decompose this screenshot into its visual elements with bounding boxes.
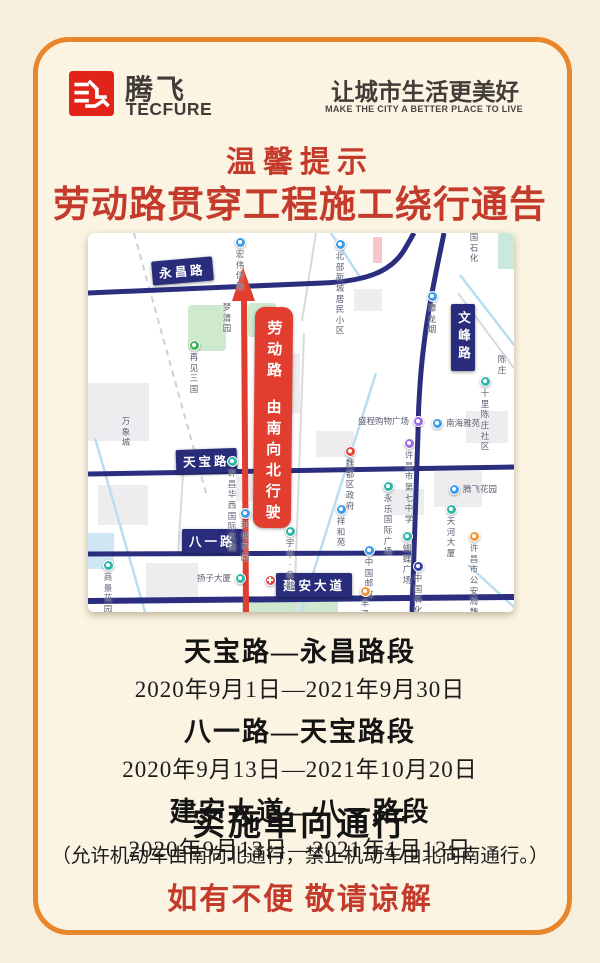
detour-direction: 由南向北行驶	[261, 399, 283, 525]
map-poi-label: 扬子大厦	[197, 573, 231, 584]
map-poi-label: 宇华·名都	[286, 538, 295, 591]
apology-text: 如有不便 敬请谅解	[0, 874, 600, 918]
map-pin-icon	[336, 504, 347, 515]
map-poi-label: 潭龙烟	[428, 303, 437, 335]
map-poi-label: 天河大厦	[447, 516, 456, 559]
map-pin-icon	[364, 545, 375, 556]
map-poi-label: 北部新城 居民小区	[336, 251, 345, 336]
closure-dates: 2020年9月13日—2021年10月20日	[0, 750, 600, 784]
map-pin-icon	[103, 560, 114, 571]
policy-text: 实施单向通行	[0, 797, 600, 845]
map-poi-label: 中国石化	[414, 573, 423, 612]
poster: 腾飞 TECFURE 让城市生活更美好 MAKE THE CITY A BETT…	[0, 0, 600, 963]
map-pin-icon	[345, 446, 356, 457]
brand-slogan-en: MAKE THE CITY A BETTER PLACE TO LIVE	[324, 104, 524, 114]
map-pin-icon	[446, 504, 457, 515]
map-poi-label: 万象城	[122, 416, 131, 448]
closure-road-range: 天宝路—永昌路段	[0, 630, 600, 669]
map-poi-label: 宏伟佳苑	[236, 249, 245, 292]
map-pin-icon	[402, 531, 413, 542]
map-poi-label: 丰泽园饭店	[361, 598, 370, 612]
map-pin-icon	[480, 376, 491, 387]
map-poi-label: 陈庄	[498, 354, 507, 375]
map-pin-icon	[449, 484, 460, 495]
map-pin-icon	[227, 456, 238, 467]
construction-map: 永昌路天宝路八一路建安大道文峰路 劳动路 由南向北行驶 宏伟佳苑北部新城 居民小…	[88, 233, 514, 612]
tecfure-logo-icon	[69, 71, 114, 116]
map-poi-label: 南海雅苑	[446, 418, 480, 429]
map-poi-label: 魏都区政府	[346, 458, 355, 511]
map-poi-label: 永乐国际广场	[384, 493, 393, 557]
map-pin-icon	[383, 481, 394, 492]
map-pin-icon	[335, 239, 346, 250]
closure-dates: 2020年9月1日—2021年9月30日	[0, 670, 600, 704]
brand-slogan-cn: 让城市生活更美好	[330, 73, 520, 107]
map-poi-label: 蝴蝶广场	[403, 543, 412, 586]
notice-title: 劳动路贯穿工程施工绕行通告	[0, 174, 600, 228]
map-pin-icon	[265, 575, 276, 586]
road-label: 文峰路	[451, 304, 475, 371]
map-pin-icon	[360, 586, 371, 597]
map-poi-label: 再见三国	[190, 352, 199, 395]
map-poi-label: 腾飞花园	[463, 484, 497, 495]
map-pin-icon	[189, 340, 200, 351]
map-pin-icon	[432, 418, 443, 429]
map-poi-label: 国石化	[470, 233, 479, 264]
detour-banner: 劳动路 由南向北行驶	[253, 307, 293, 528]
map-pin-icon	[413, 416, 424, 427]
map-pin-icon	[235, 237, 246, 248]
map-poi-label: 梦清园	[223, 302, 232, 334]
map-pin-icon	[240, 508, 251, 519]
map-pin-icon	[404, 438, 415, 449]
map-poi-label: 和谐家园	[241, 520, 250, 563]
map-pin-icon	[285, 526, 296, 537]
map-poi-label: 盛程购物广场	[358, 416, 409, 427]
detour-road-name: 劳动路	[263, 320, 285, 383]
map-poi-label: 商景花园	[104, 572, 113, 612]
map-poi-label: 许昌市公安局 魏都分局	[470, 543, 479, 612]
map-pin-icon	[413, 561, 424, 572]
brand-name-en: TECFURE	[126, 99, 212, 120]
map-poi-label: 十里陈庄社区	[481, 388, 490, 452]
map-pin-icon	[469, 531, 480, 542]
policy-detail-text: （允许机动车由南向北通行，禁止机动车由北向南通行。）	[0, 839, 600, 868]
map-pin-icon	[235, 573, 246, 584]
map-pin-icon	[427, 291, 438, 302]
map-poi-label: 许昌华西 国际花园	[228, 468, 237, 553]
closure-road-range: 八一路—天宝路段	[0, 710, 600, 749]
map-poi-label: 许昌市第七中学	[405, 450, 414, 524]
map-poi-label: 祥和苑	[337, 516, 346, 548]
